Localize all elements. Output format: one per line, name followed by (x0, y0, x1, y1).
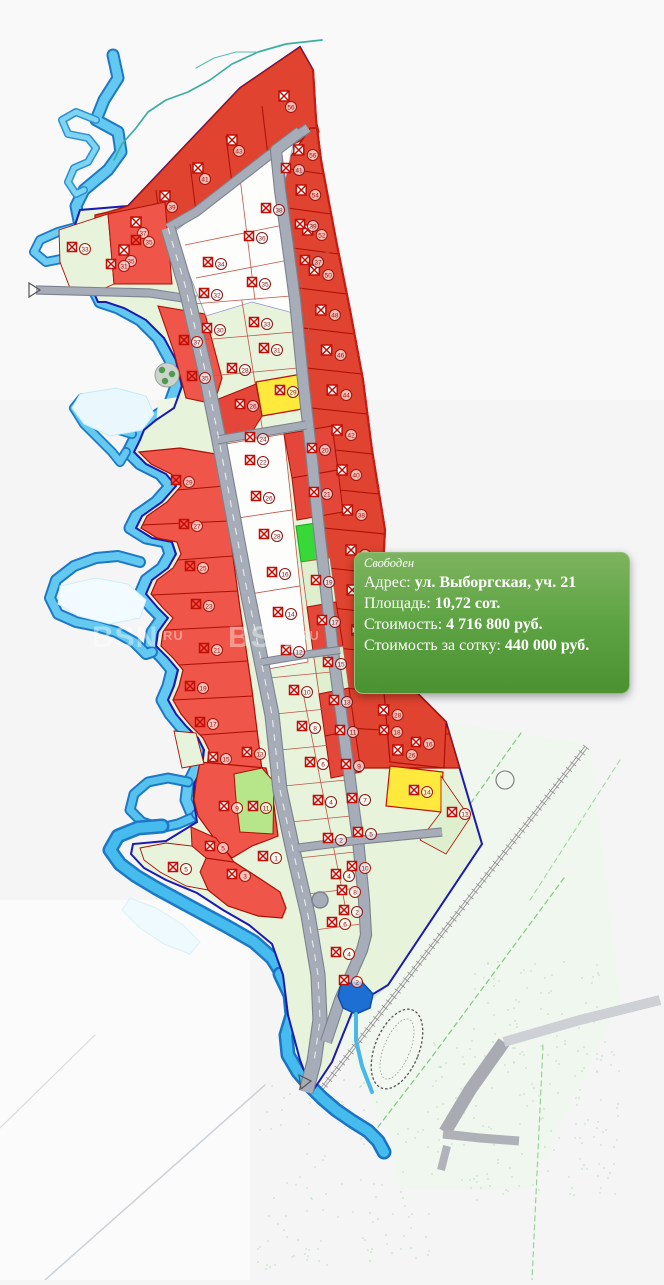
svg-text:50: 50 (325, 272, 333, 279)
svg-text:5: 5 (184, 866, 188, 873)
svg-text:10: 10 (303, 689, 311, 696)
svg-text:14: 14 (423, 789, 431, 796)
svg-text:21: 21 (213, 647, 221, 654)
svg-text:46: 46 (337, 352, 345, 359)
svg-text:11: 11 (263, 805, 270, 812)
svg-text:41: 41 (295, 167, 303, 174)
svg-text:28: 28 (394, 712, 402, 719)
svg-text:13: 13 (343, 699, 351, 706)
svg-text:7: 7 (363, 797, 367, 804)
svg-text:48: 48 (331, 312, 339, 319)
svg-text:28: 28 (241, 367, 249, 374)
svg-text:2: 2 (355, 979, 359, 986)
svg-text:3: 3 (243, 873, 247, 880)
svg-text:15: 15 (337, 661, 345, 668)
svg-text:15: 15 (222, 756, 230, 763)
svg-text:14: 14 (287, 611, 295, 618)
svg-text:4: 4 (329, 799, 333, 806)
svg-text:35: 35 (201, 375, 209, 382)
svg-text:5: 5 (369, 831, 373, 838)
svg-text:44: 44 (343, 392, 351, 399)
svg-text:42: 42 (347, 432, 355, 439)
svg-text:35: 35 (261, 281, 269, 288)
svg-text:9: 9 (235, 805, 239, 812)
svg-text:4: 4 (347, 951, 351, 958)
svg-text:18: 18 (393, 729, 401, 736)
svg-text:5: 5 (221, 845, 225, 852)
svg-text:8: 8 (353, 889, 357, 896)
svg-text:4: 4 (347, 873, 351, 880)
svg-text:26: 26 (265, 495, 273, 502)
svg-text:39: 39 (309, 223, 317, 230)
svg-text:37: 37 (314, 259, 322, 266)
svg-text:12: 12 (461, 811, 469, 818)
svg-text:33: 33 (81, 246, 89, 253)
svg-text:33: 33 (263, 321, 271, 328)
svg-text:36: 36 (258, 235, 266, 242)
svg-text:19: 19 (199, 685, 207, 692)
svg-text:34: 34 (217, 261, 225, 268)
svg-text:25: 25 (199, 565, 207, 572)
svg-text:16: 16 (281, 571, 289, 578)
svg-text:54: 54 (312, 192, 320, 199)
svg-text:23: 23 (205, 603, 213, 610)
svg-text:40: 40 (352, 472, 360, 479)
svg-text:29: 29 (185, 479, 193, 486)
svg-text:17: 17 (209, 721, 217, 728)
svg-text:31: 31 (120, 263, 128, 270)
svg-text:27: 27 (193, 523, 201, 530)
svg-text:26: 26 (249, 403, 257, 410)
svg-text:6: 6 (343, 921, 347, 928)
svg-text:30: 30 (216, 327, 224, 334)
svg-text:10: 10 (361, 865, 369, 872)
svg-text:56: 56 (309, 152, 317, 159)
svg-text:37: 37 (193, 339, 201, 346)
svg-text:29: 29 (289, 389, 297, 396)
svg-text:38: 38 (358, 512, 366, 519)
svg-text:13: 13 (256, 751, 264, 758)
svg-text:56: 56 (287, 104, 295, 111)
svg-text:21: 21 (323, 491, 331, 498)
svg-text:52: 52 (318, 232, 326, 239)
svg-text:32: 32 (213, 292, 221, 299)
svg-text:19: 19 (325, 579, 333, 586)
svg-text:41: 41 (201, 176, 209, 183)
svg-text:28: 28 (273, 533, 281, 540)
svg-text:17: 17 (331, 619, 339, 626)
svg-text:26: 26 (408, 752, 416, 759)
svg-text:8: 8 (313, 725, 317, 732)
svg-text:1: 1 (274, 855, 278, 862)
svg-text:16: 16 (425, 741, 433, 748)
svg-text:43: 43 (235, 148, 243, 155)
svg-text:2: 2 (355, 909, 359, 916)
svg-text:6: 6 (321, 761, 325, 768)
svg-text:31: 31 (273, 347, 281, 354)
svg-text:9: 9 (357, 763, 361, 770)
svg-text:39: 39 (168, 204, 176, 211)
svg-text:38: 38 (275, 207, 283, 214)
svg-text:24: 24 (259, 436, 267, 443)
svg-text:35: 35 (145, 239, 153, 246)
svg-text:22: 22 (259, 459, 267, 466)
svg-text:20: 20 (321, 447, 329, 454)
svg-text:2: 2 (339, 837, 343, 844)
svg-text:11: 11 (350, 729, 357, 736)
